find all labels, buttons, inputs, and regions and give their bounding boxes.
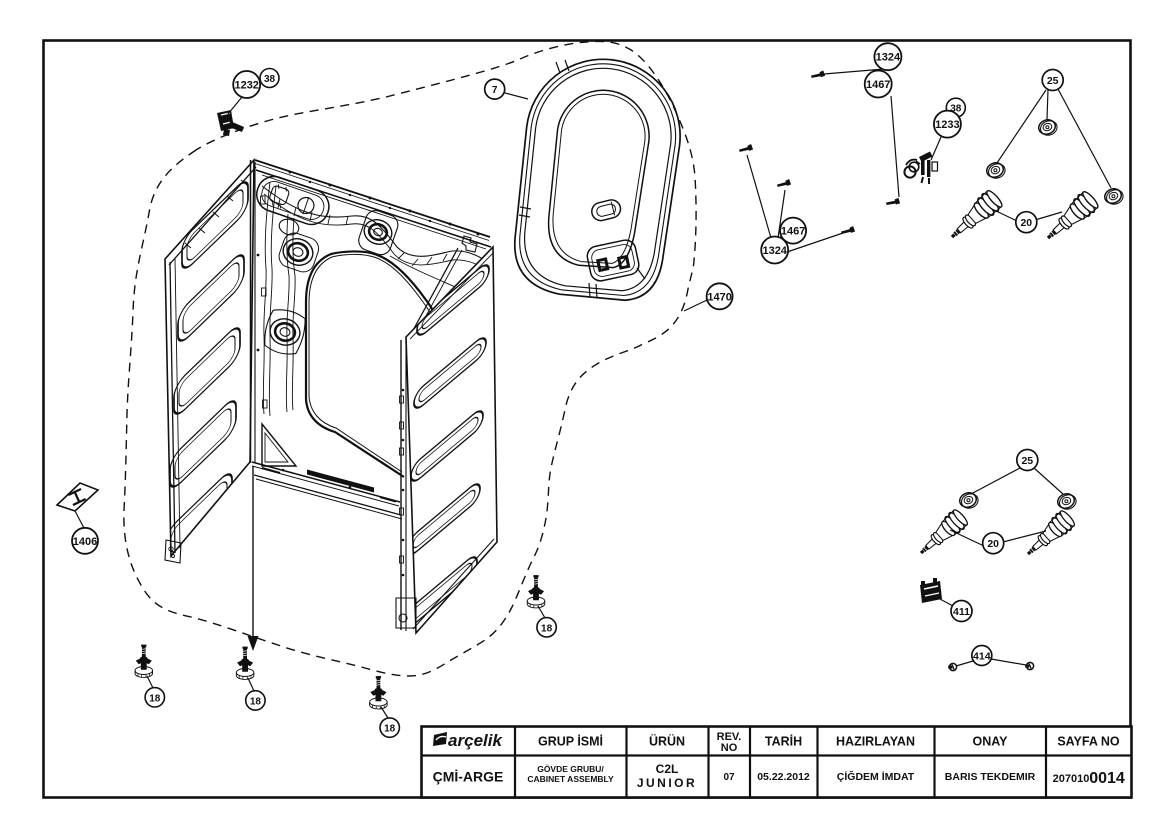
svg-text:411: 411 (953, 606, 970, 618)
svg-text:20: 20 (1020, 217, 1032, 229)
svg-text:C2L: C2L (656, 762, 679, 776)
svg-text:JUNIOR: JUNIOR (637, 776, 697, 790)
svg-text:38: 38 (264, 74, 276, 85)
svg-text:207010: 207010 (1053, 773, 1090, 785)
svg-text:CABINET ASSEMBLY: CABINET ASSEMBLY (527, 774, 614, 784)
svg-text:05.22.2012: 05.22.2012 (757, 771, 810, 783)
svg-text:GRUP İSMİ: GRUP İSMİ (538, 734, 603, 749)
svg-text:TARİH: TARİH (765, 734, 802, 749)
svg-text:1467: 1467 (781, 226, 805, 238)
svg-text:1324: 1324 (876, 52, 901, 64)
svg-text:1406: 1406 (73, 536, 97, 548)
svg-text:1324: 1324 (762, 245, 787, 257)
svg-text:7: 7 (492, 85, 498, 96)
svg-text:arçelik: arçelik (448, 731, 503, 750)
svg-text:414: 414 (973, 651, 991, 663)
svg-text:ONAY: ONAY (973, 735, 1009, 749)
svg-text:25: 25 (1047, 75, 1059, 87)
svg-text:ÇMİ-ARGE: ÇMİ-ARGE (433, 769, 504, 785)
svg-text:1470: 1470 (707, 291, 731, 303)
svg-text:GÖVDE GRUBU/: GÖVDE GRUBU/ (537, 764, 604, 774)
svg-text:25: 25 (1021, 455, 1033, 467)
svg-text:18: 18 (250, 696, 262, 707)
svg-text:1232: 1232 (234, 80, 258, 92)
svg-text:HAZIRLAYAN: HAZIRLAYAN (836, 735, 915, 749)
svg-text:0014: 0014 (1089, 770, 1125, 787)
svg-text:18: 18 (541, 623, 553, 634)
svg-text:1233: 1233 (935, 119, 959, 131)
svg-text:18: 18 (384, 724, 396, 735)
svg-text:18: 18 (149, 693, 161, 704)
svg-text:SAYFA NO: SAYFA NO (1057, 735, 1120, 749)
svg-text:BARIS TEKDEMIR: BARIS TEKDEMIR (945, 771, 1036, 783)
svg-text:20: 20 (987, 538, 999, 550)
svg-text:1467: 1467 (866, 79, 890, 91)
svg-text:NO: NO (721, 742, 738, 754)
svg-text:07: 07 (723, 772, 735, 783)
svg-text:ÇİĞDEM İMDAT: ÇİĞDEM İMDAT (837, 770, 915, 783)
svg-text:ÜRÜN: ÜRÜN (649, 734, 685, 749)
